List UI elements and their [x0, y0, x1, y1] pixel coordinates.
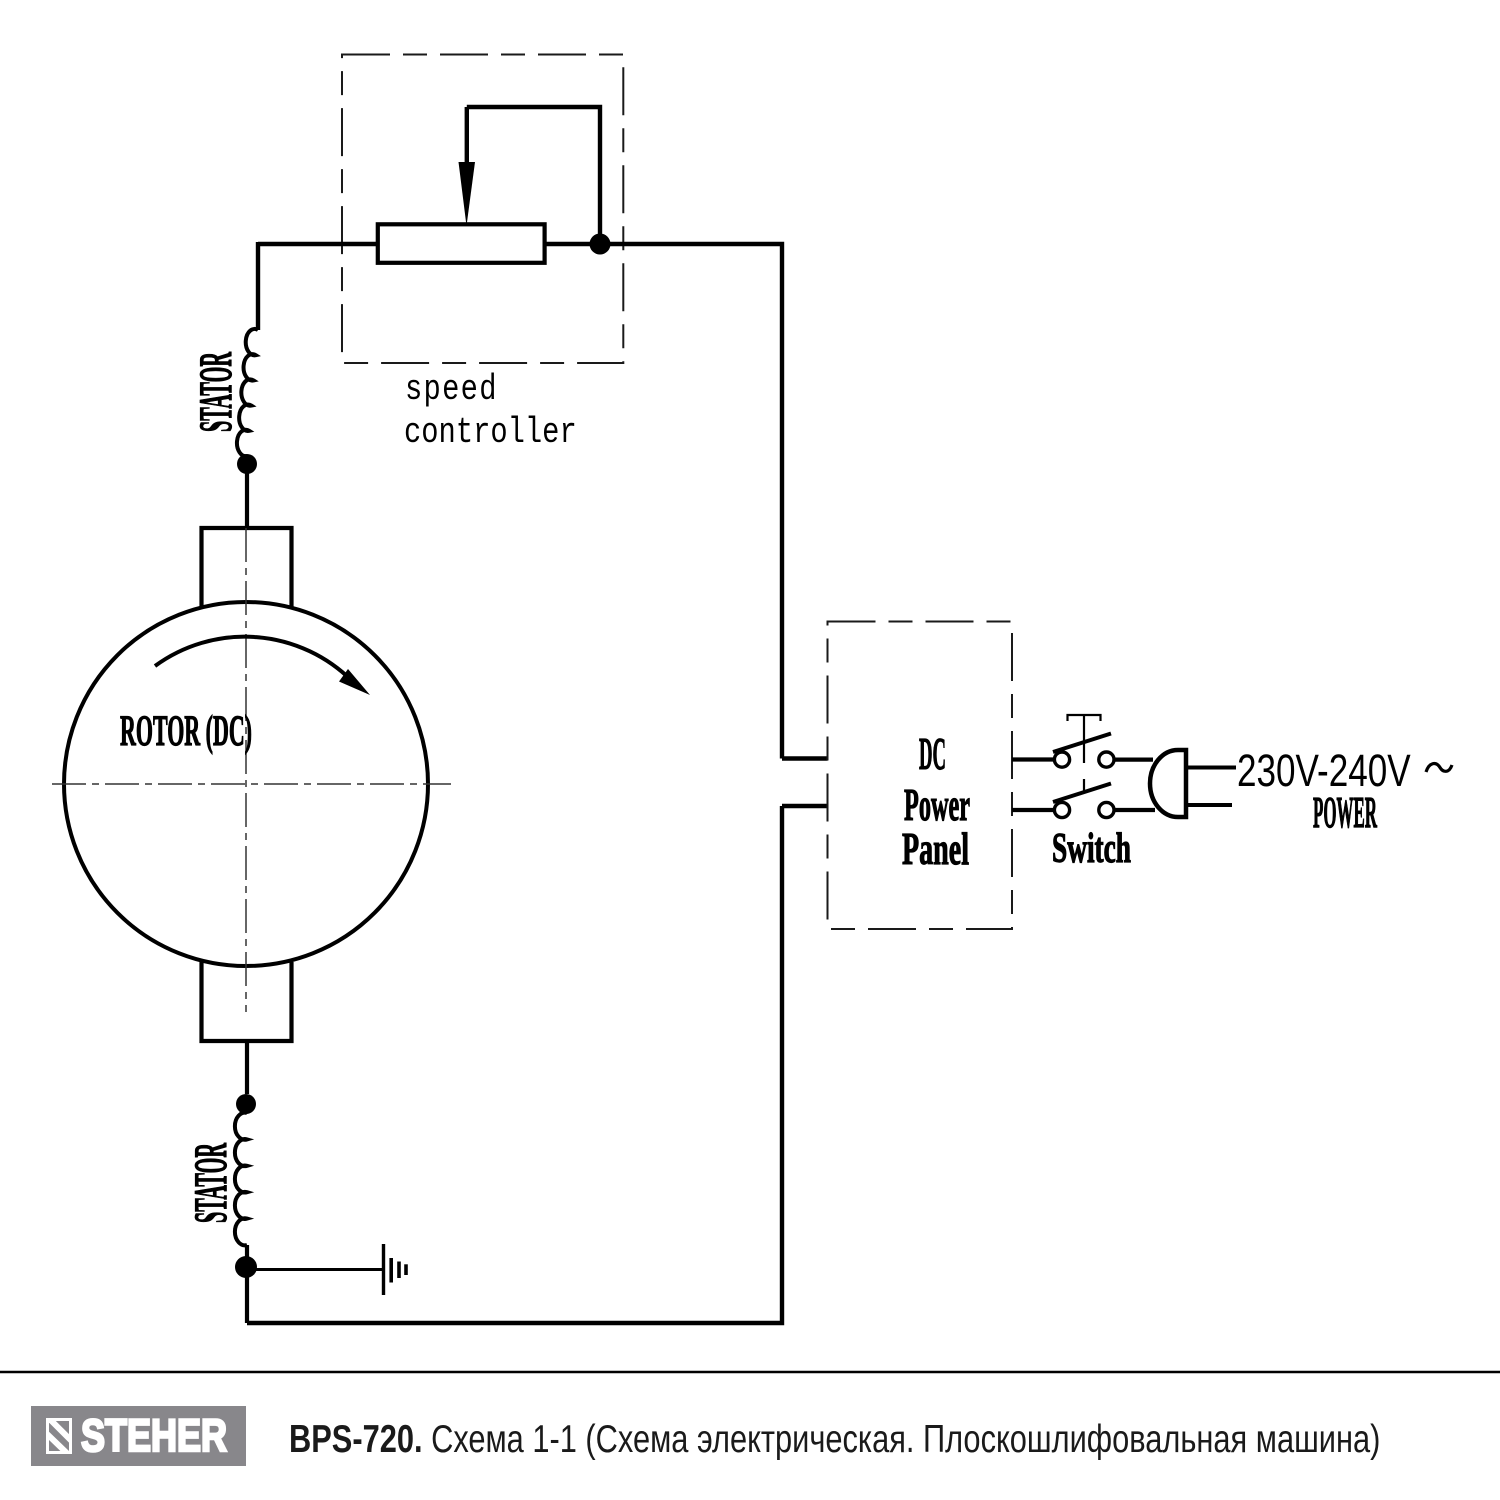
- svg-text:BPS-720. Схема 1-1 (Схема элек: BPS-720. Схема 1-1 (Схема электрическая.…: [289, 1418, 1380, 1461]
- svg-text:Switch: Switch: [1052, 826, 1131, 872]
- svg-text:controller: controller: [404, 412, 577, 453]
- svg-text:Panel: Panel: [902, 823, 969, 874]
- svg-text:DC: DC: [919, 728, 946, 779]
- svg-text:speed: speed: [405, 369, 498, 410]
- svg-text:POWER: POWER: [1313, 788, 1377, 837]
- svg-text:ROTOR (DC): ROTOR (DC): [120, 708, 252, 755]
- svg-text:STATOR: STATOR: [190, 352, 242, 432]
- svg-text:STATOR: STATOR: [185, 1143, 237, 1223]
- svg-text:STEHER: STEHER: [81, 1410, 227, 1461]
